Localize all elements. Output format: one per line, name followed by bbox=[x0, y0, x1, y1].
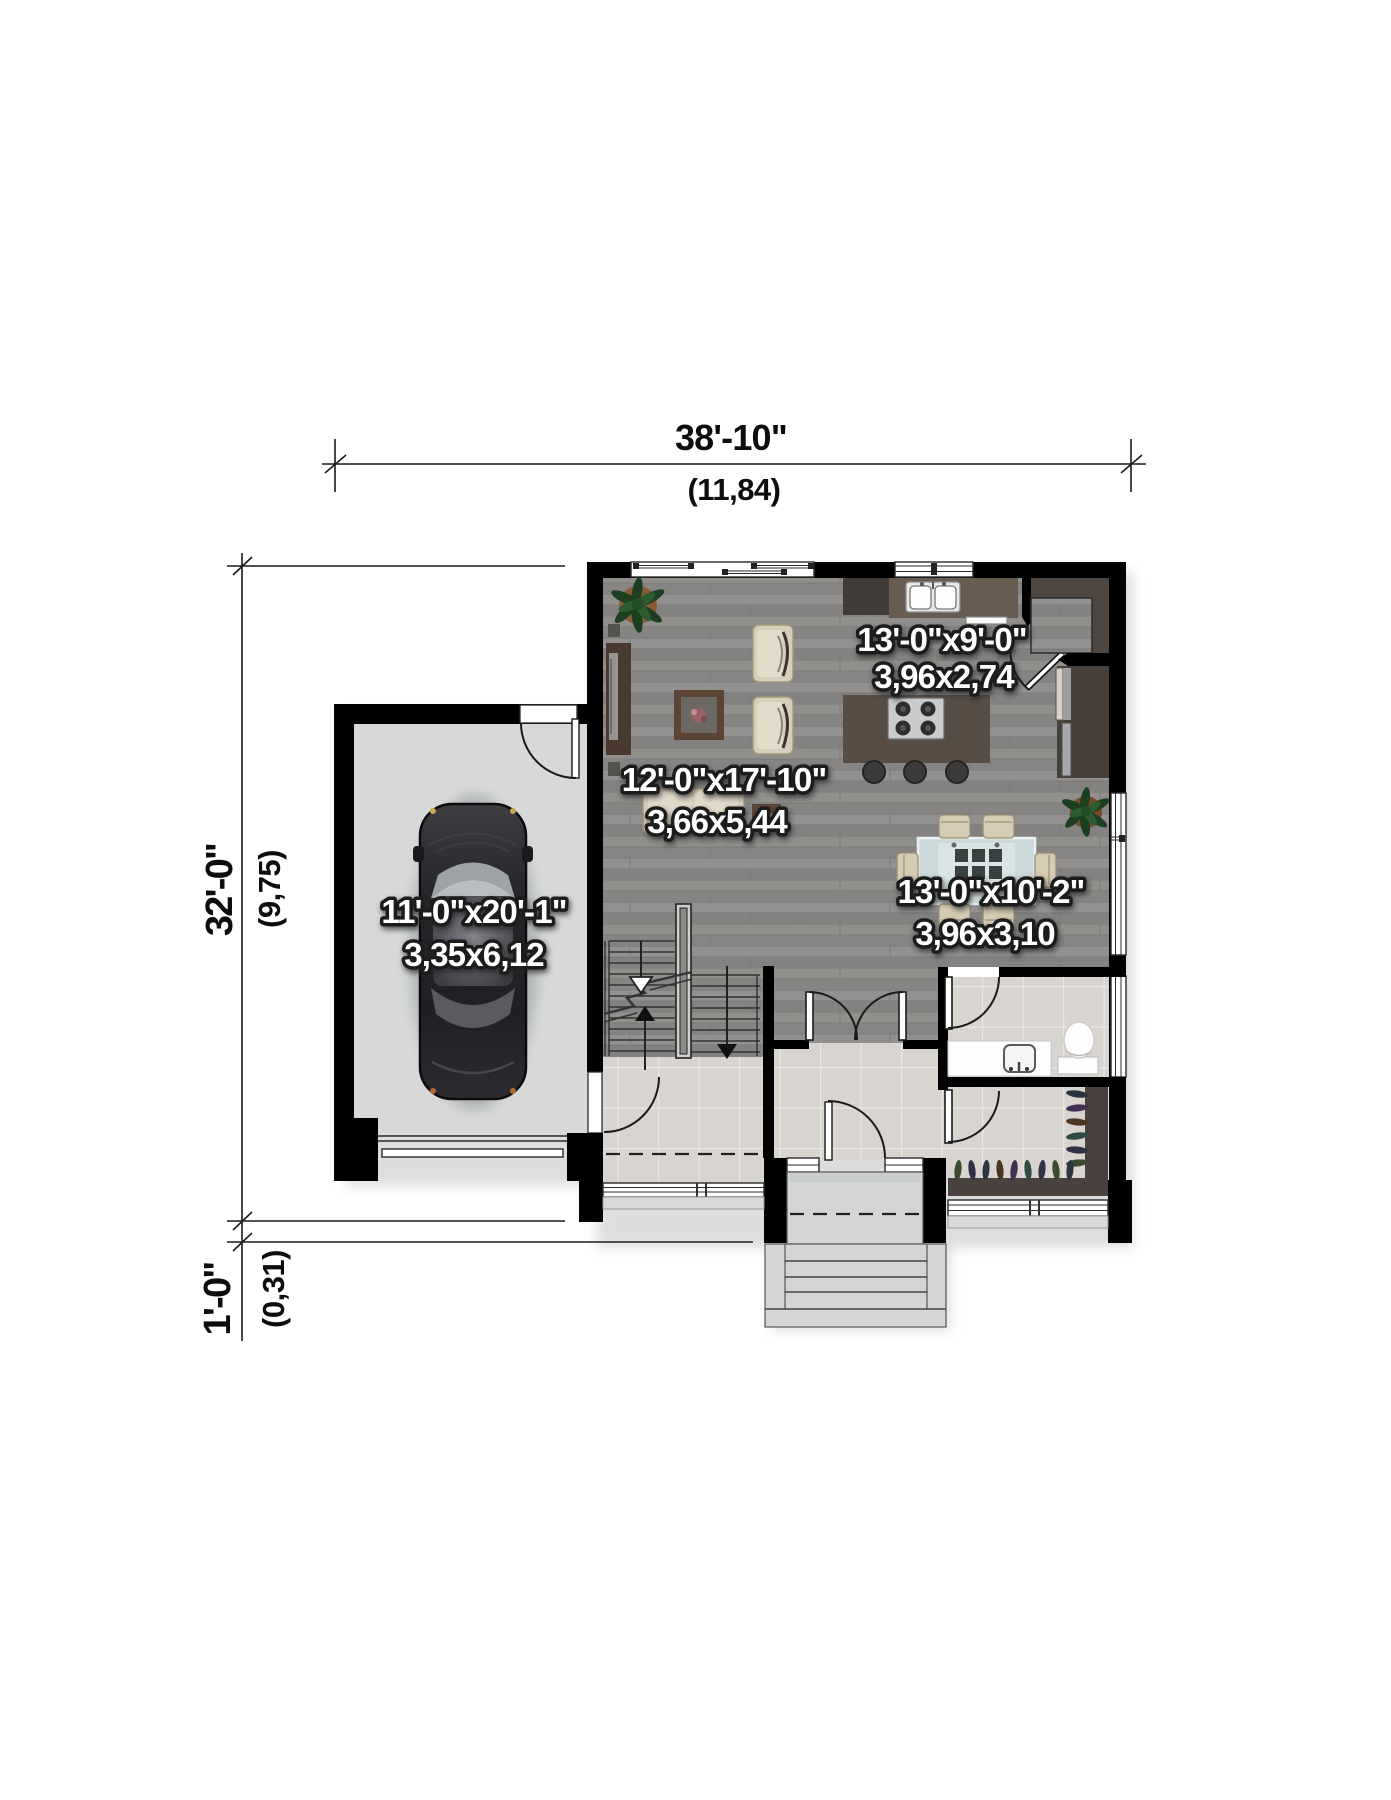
svg-text:(0,31): (0,31) bbox=[256, 1250, 291, 1328]
svg-text:(11,84): (11,84) bbox=[687, 472, 780, 507]
svg-text:3,66x5,44: 3,66x5,44 bbox=[647, 803, 788, 840]
svg-text:3,96x2,74: 3,96x2,74 bbox=[874, 658, 1015, 695]
svg-text:1'-0": 1'-0" bbox=[197, 1263, 239, 1336]
svg-text:13'-0"x10'-2": 13'-0"x10'-2" bbox=[897, 873, 1084, 910]
svg-text:32'-0": 32'-0" bbox=[199, 844, 241, 936]
svg-text:11'-0"x20'-1": 11'-0"x20'-1" bbox=[381, 893, 566, 930]
svg-text:3,96x3,10: 3,96x3,10 bbox=[915, 915, 1055, 952]
svg-text:38'-10": 38'-10" bbox=[675, 417, 787, 458]
svg-text:13'-0"x9'-0": 13'-0"x9'-0" bbox=[857, 621, 1026, 658]
svg-text:12'-0"x17'-10": 12'-0"x17'-10" bbox=[622, 761, 827, 798]
svg-text:(9,75): (9,75) bbox=[252, 850, 287, 928]
svg-text:3,35x6,12: 3,35x6,12 bbox=[404, 936, 544, 973]
